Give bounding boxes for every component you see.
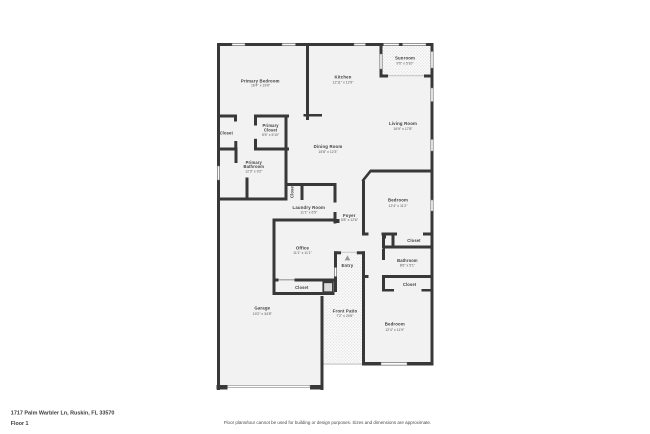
- svg-text:Bathroom: Bathroom: [397, 258, 418, 263]
- svg-text:Dining Room: Dining Room: [314, 144, 343, 149]
- svg-text:16'4" x 19'6": 16'4" x 19'6": [251, 84, 271, 88]
- svg-text:12'3" x 9'2": 12'3" x 9'2": [245, 169, 263, 173]
- svg-text:5'5" x 5'10": 5'5" x 5'10": [262, 133, 280, 137]
- svg-text:5'8" x 12'6": 5'8" x 12'6": [341, 218, 359, 222]
- svg-text:Closet: Closet: [403, 282, 417, 287]
- svg-text:Bedroom: Bedroom: [388, 197, 408, 202]
- svg-text:9'5" x 5'10": 9'5" x 5'10": [396, 61, 414, 65]
- svg-text:Closet: Closet: [290, 184, 295, 198]
- svg-text:Bathroom: Bathroom: [244, 164, 265, 169]
- svg-text:Office: Office: [296, 246, 310, 251]
- svg-text:15'8" x 12'3": 15'8" x 12'3": [318, 150, 338, 154]
- svg-text:12'4" x 11'9": 12'4" x 11'9": [385, 328, 405, 332]
- svg-text:Floor 1: Floor 1: [11, 421, 29, 427]
- svg-text:Floor plans/tour cannot be use: Floor plans/tour cannot be used for buil…: [224, 420, 431, 425]
- svg-text:Closet: Closet: [264, 127, 278, 132]
- svg-text:7'2" x 20'6": 7'2" x 20'6": [336, 314, 354, 318]
- svg-text:Front Patio: Front Patio: [333, 309, 358, 314]
- svg-text:Closet: Closet: [407, 238, 421, 243]
- svg-text:Living Room: Living Room: [389, 121, 417, 126]
- svg-text:11'1" x 11'1": 11'1" x 11'1": [293, 251, 312, 255]
- svg-text:Closet: Closet: [220, 131, 234, 136]
- svg-text:8'6" x 5'1": 8'6" x 5'1": [400, 264, 416, 268]
- svg-text:Garage: Garage: [254, 306, 270, 311]
- svg-text:12'11" x 12'9": 12'11" x 12'9": [333, 81, 355, 85]
- svg-text:Closet: Closet: [295, 285, 309, 290]
- svg-text:Kitchen: Kitchen: [334, 74, 351, 79]
- svg-text:19'2" x 34'8": 19'2" x 34'8": [253, 312, 273, 316]
- svg-text:16'9" x 17'8": 16'9" x 17'8": [393, 127, 413, 131]
- svg-text:Entry: Entry: [341, 263, 353, 268]
- svg-text:12'4" x 11'2": 12'4" x 11'2": [389, 204, 409, 208]
- svg-text:11'1" x 6'5": 11'1" x 6'5": [300, 210, 318, 214]
- svg-text:1717 Palm Warbler Ln, Ruskin,: 1717 Palm Warbler Ln, Ruskin, FL 33570: [11, 410, 115, 416]
- svg-text:Bedroom: Bedroom: [385, 321, 405, 326]
- svg-text:Sunroom: Sunroom: [395, 55, 415, 60]
